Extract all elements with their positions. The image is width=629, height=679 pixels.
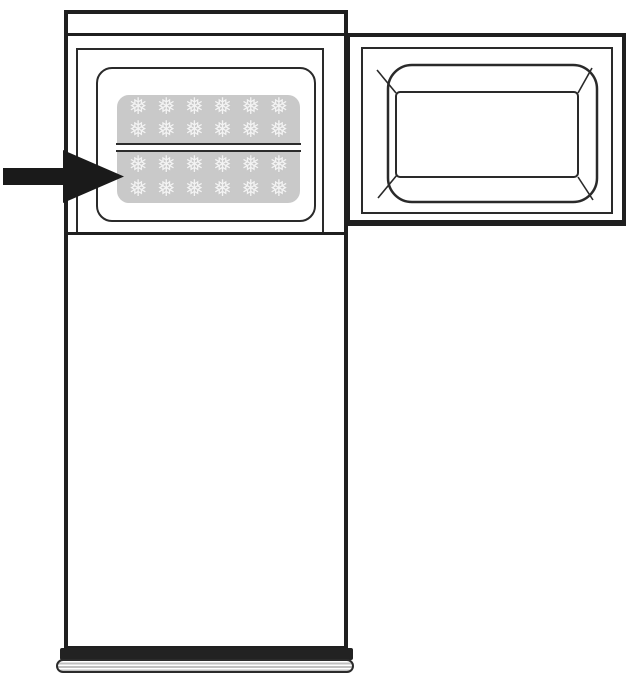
snowflake-icon: ❅ (157, 154, 176, 177)
cabinet-top-cap-line (68, 33, 344, 36)
snowflake-icon: ❅ (128, 119, 147, 142)
snowflake-icon: ❅ (157, 178, 176, 201)
snowflake-icon: ❅ (269, 154, 288, 177)
snowflake-icon: ❅ (241, 119, 260, 142)
ice-tray-top: ❅❅❅❅❅❅❅❅❅❅❅❅ (117, 95, 300, 143)
freezer-bottom-divider-line (68, 232, 344, 235)
snowflake-icon: ❅ (128, 96, 147, 119)
snowflake-icon: ❅ (241, 178, 260, 201)
ice-cube-trays: ❅❅❅❅❅❅❅❅❅❅❅❅ ❅❅❅❅❅❅❅❅❅❅❅❅ (117, 95, 300, 203)
snowflake-icon: ❅ (157, 96, 176, 119)
snowflake-icon: ❅ (269, 119, 288, 142)
freezer-compartment-frame: ❅❅❅❅❅❅❅❅❅❅❅❅ ❅❅❅❅❅❅❅❅❅❅❅❅ (76, 48, 324, 234)
snowflake-icon: ❅ (128, 154, 147, 177)
base-grille (56, 659, 354, 673)
snowflake-icon: ❅ (213, 154, 232, 177)
freezer-door-open (346, 33, 626, 226)
callout-arrow-icon (3, 149, 127, 205)
snowflake-icon: ❅ (185, 178, 204, 201)
refrigerator-cabinet: ❅❅❅❅❅❅❅❅❅❅❅❅ ❅❅❅❅❅❅❅❅❅❅❅❅ (64, 10, 348, 650)
snowflake-icon: ❅ (185, 119, 204, 142)
freezer-door-inner-panel (350, 37, 622, 222)
ice-tray-divider (116, 143, 301, 152)
snowflake-icon: ❅ (241, 154, 260, 177)
ice-tray-bottom: ❅❅❅❅❅❅❅❅❅❅❅❅ (117, 152, 300, 203)
snowflake-icon: ❅ (185, 96, 204, 119)
diagram-canvas: ❅❅❅❅❅❅❅❅❅❅❅❅ ❅❅❅❅❅❅❅❅❅❅❅❅ (0, 0, 629, 679)
snowflake-icon: ❅ (213, 178, 232, 201)
snowflake-icon: ❅ (128, 178, 147, 201)
snowflake-icon: ❅ (269, 178, 288, 201)
snowflake-icon: ❅ (213, 119, 232, 142)
snowflake-icon: ❅ (157, 119, 176, 142)
snowflake-icon: ❅ (269, 96, 288, 119)
snowflake-icon: ❅ (241, 96, 260, 119)
snowflake-icon: ❅ (185, 154, 204, 177)
arrow-shape (3, 150, 124, 203)
snowflake-icon: ❅ (213, 96, 232, 119)
